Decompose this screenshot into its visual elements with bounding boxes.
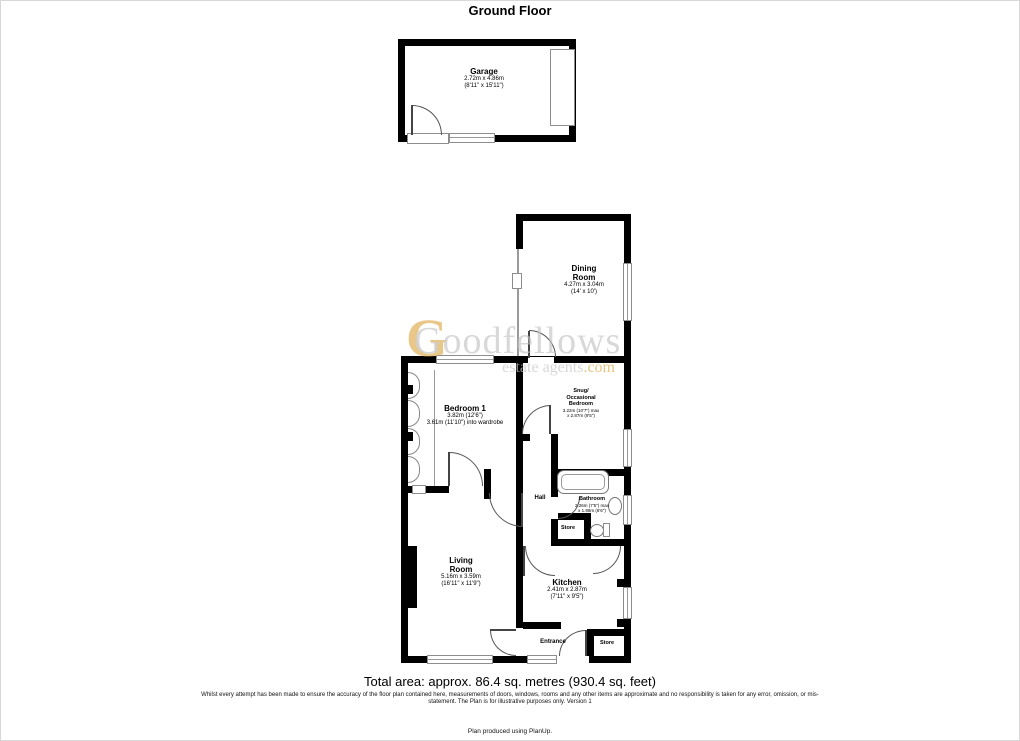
room-dims: 3.82m (12'6"): [409, 413, 521, 420]
window: [412, 485, 426, 494]
door-leaf: [585, 630, 587, 656]
door-arc: [449, 452, 483, 486]
room-dims-imperial: (16'11" x 11'9"): [411, 581, 511, 588]
disclaimer-line1: Whilst every attempt has been made to en…: [1, 692, 1019, 699]
window: [623, 429, 632, 467]
door-leaf: [523, 546, 525, 576]
credit-text: Plan produced using PlanUp.: [1, 728, 1019, 735]
total-area-text: Total area: approx. 86.4 sq. metres (930…: [1, 674, 1019, 689]
room-name: Garage: [434, 67, 534, 76]
door-arc: [529, 330, 556, 357]
wall-segment: [516, 434, 530, 441]
room-dims-metric: 2.72m x 4.86m: [434, 76, 534, 83]
room-dims: 3.61m (11'10") into wardrobe: [409, 420, 521, 427]
door-opening: [516, 628, 523, 656]
wall-pier: [404, 385, 413, 394]
door-opening: [557, 655, 589, 664]
door-arc: [593, 546, 621, 574]
room-name: Bedroom 1: [409, 404, 521, 413]
room-dims-metric: 2.41m x 2.87m: [531, 587, 603, 594]
bathtub-icon: [557, 470, 609, 494]
room-name: Dining: [532, 264, 636, 273]
door-leaf: [411, 105, 413, 135]
room-label-hall: Hall: [525, 495, 555, 502]
wardrobe-door-icon: [408, 456, 420, 483]
door-arc: [525, 546, 555, 576]
room-label-bedroom1: Bedroom 1 3.82m (12'6") 3.61m (11'10") i…: [409, 404, 521, 427]
room-label-store1: Store: [553, 525, 583, 532]
wall-segment: [398, 39, 576, 46]
room-dims-metric: 4.27m x 3.04m: [532, 282, 636, 289]
wall-segment: [398, 39, 405, 142]
wardrobe-front-line: [434, 370, 435, 486]
room-label-kitchen: Kitchen 2.41m x 2.87m (7'11" x 9'5"): [531, 578, 603, 601]
room-name: Living: [411, 556, 511, 565]
wall-pier: [404, 432, 413, 441]
room-dims-imperial: (8'11" x 15'11"): [434, 83, 534, 90]
door-leaf: [448, 452, 450, 486]
room-label-garage: Garage 2.72m x 4.86m (8'11" x 15'11"): [434, 67, 534, 90]
room-label-living: Living Room 5.16m x 3.59m (16'11" x 11'9…: [411, 556, 511, 588]
door-leaf: [521, 493, 523, 527]
room-dims-metric: 5.16m x 3.59m: [411, 574, 511, 581]
toilet-tank-icon: [603, 523, 610, 537]
wall-segment: [401, 356, 408, 663]
wall-segment: [516, 214, 523, 249]
disclaimer-line2: statement. The Plan is for illustrative …: [1, 699, 1019, 706]
window: [527, 655, 557, 664]
door-leaf: [528, 331, 530, 358]
room-label-snug: Snug/ Occasional Bedroom 3.22m (10'7") m…: [546, 388, 616, 419]
window: [427, 655, 493, 664]
room-name: Store: [553, 525, 583, 532]
window: [512, 273, 522, 289]
room-dims-imperial: (7'11" x 9'5"): [531, 594, 603, 601]
wall-segment: [516, 214, 631, 221]
toilet-icon: [590, 524, 604, 537]
window: [436, 355, 494, 364]
window: [623, 587, 632, 619]
floorplan-page: Ground Floor Garage 2.72m x 4.86m (8'11"…: [0, 0, 1020, 741]
agency-watermark: G Goodfellows estate agents.com: [404, 313, 619, 377]
door-arc: [489, 493, 523, 527]
room-label-store2: Store: [593, 640, 621, 647]
wall-pier: [617, 619, 625, 627]
wall-segment: [551, 539, 631, 546]
room-name: Kitchen: [531, 578, 603, 587]
room-label-dining: Dining Room 4.27m x 3.04m (14' x 10'): [532, 264, 636, 296]
window: [623, 495, 632, 525]
disclaimer-text: Whilst every attempt has been made to en…: [1, 692, 1019, 706]
door-arc: [490, 630, 516, 656]
window: [449, 133, 495, 143]
door-opening: [528, 357, 554, 363]
room-name: Store: [593, 640, 621, 647]
room-dims-imperial: (14' x 10'): [532, 289, 636, 296]
door-arc: [412, 105, 442, 135]
door-leaf: [490, 629, 516, 631]
garage-door-panel: [550, 49, 575, 126]
wall-pier: [617, 579, 625, 587]
wall-thin-segment: [517, 249, 519, 357]
room-name: Room: [411, 565, 511, 574]
room-label-bathroom: Bathroom 2.26m (7'5") max x 1.98m (6'6"): [563, 496, 621, 514]
room-label-entrance: Entrance: [531, 639, 575, 646]
room-name: Room: [532, 273, 636, 282]
room-dims: x 2.87m (9'5"): [546, 413, 616, 419]
room-dims: x 1.98m (6'6"): [563, 508, 621, 514]
page-title: Ground Floor: [1, 3, 1019, 18]
